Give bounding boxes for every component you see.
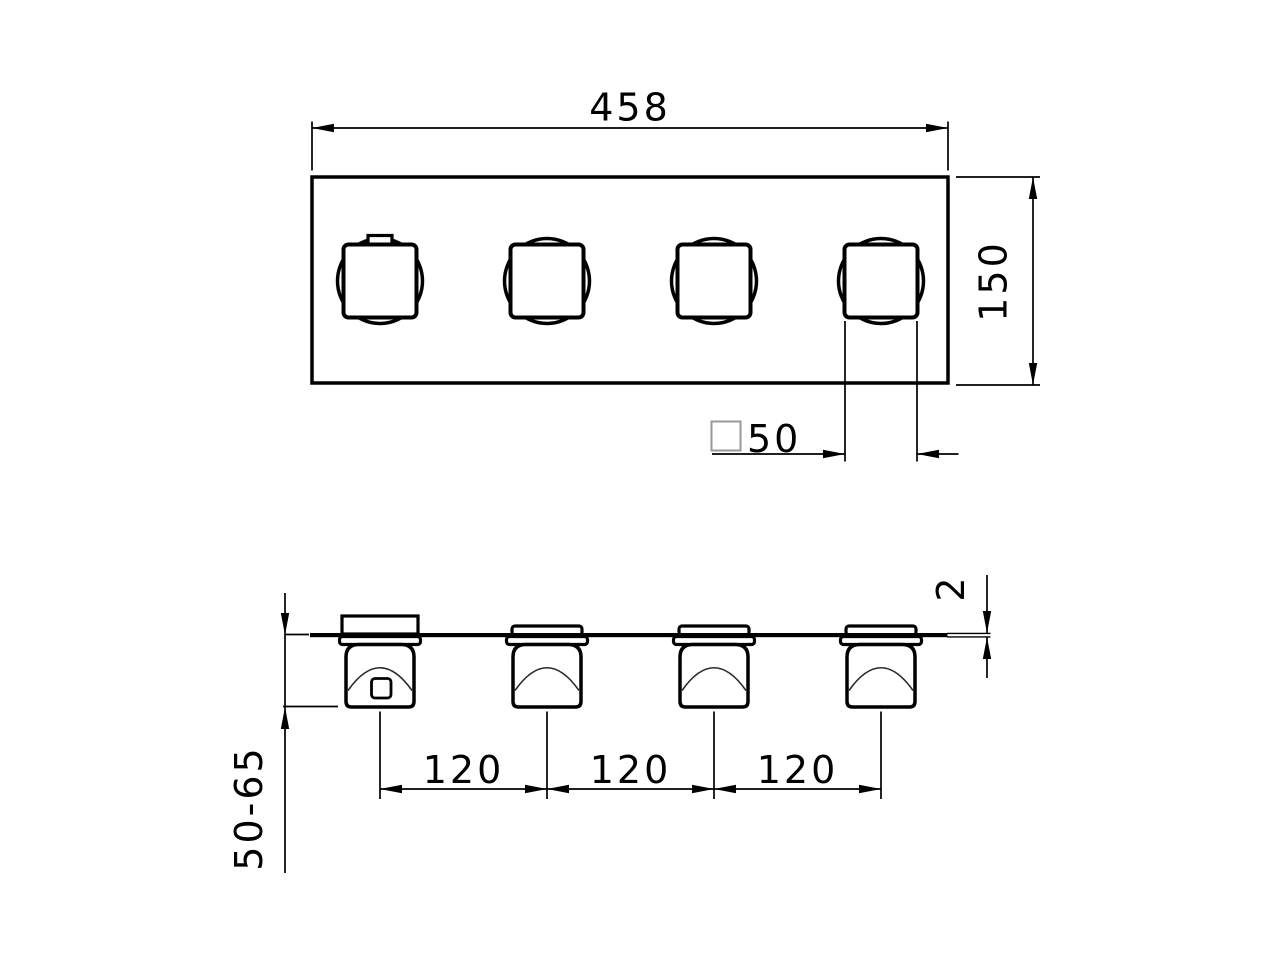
handle-square — [344, 245, 417, 318]
handle-cap — [342, 616, 418, 634]
arrowhead-up-icon — [281, 707, 289, 729]
handle-bottom-3 — [674, 626, 755, 707]
dim-handle-spacing: 120 120 120 — [380, 712, 881, 800]
handle-body — [513, 645, 581, 708]
handle-front-1 — [338, 236, 423, 324]
spacing-label-2: 120 — [590, 748, 672, 792]
handle-bottom-2 — [507, 626, 588, 707]
handle-bottom-4 — [841, 626, 922, 707]
overall-width-label: 458 — [589, 86, 671, 130]
arrowhead-right-icon — [823, 450, 845, 458]
handle-front-3 — [672, 239, 757, 324]
handle-bottom-1 — [340, 616, 421, 707]
drawing-svg: 458 150 50 — [0, 0, 1280, 960]
square-symbol-icon — [712, 422, 741, 451]
handle-body — [847, 645, 915, 708]
handle-square — [511, 245, 584, 318]
arrowhead-left-icon — [917, 450, 939, 458]
front-view — [312, 177, 948, 383]
dim-overall-height: 150 — [956, 177, 1040, 385]
arrowhead-down-icon — [1029, 363, 1037, 385]
arrowhead-down-icon — [983, 611, 991, 633]
spacing-label-3: 120 — [757, 748, 839, 792]
handle-front-4 — [839, 239, 924, 324]
arrowhead-left-icon — [312, 124, 334, 132]
handle-square — [678, 245, 751, 318]
plate-thickness-label: 2 — [929, 574, 973, 601]
overall-height-label: 150 — [972, 240, 1016, 322]
arrowhead-left-icon — [547, 785, 569, 793]
bottom-view — [310, 616, 991, 707]
dim-overall-width: 458 — [312, 86, 948, 171]
arrowhead-up-icon — [983, 637, 991, 659]
handle-front-2 — [505, 239, 590, 324]
arrowhead-right-icon — [859, 785, 881, 793]
spacing-label-1: 120 — [423, 748, 505, 792]
handle-square — [845, 245, 918, 318]
arrowhead-up-icon — [1029, 177, 1037, 199]
plate-edge — [310, 633, 948, 637]
arrowhead-right-icon — [525, 785, 547, 793]
dim-plate-thickness: 2 — [929, 574, 991, 678]
depth-range-label: 50-65 — [227, 745, 271, 870]
arrowhead-right-icon — [692, 785, 714, 793]
arrowhead-left-icon — [380, 785, 402, 793]
technical-drawing-canvas: 458 150 50 — [0, 0, 1280, 960]
arrowhead-right-icon — [926, 124, 948, 132]
safety-button — [372, 679, 392, 699]
handle-size-label: 50 — [747, 417, 801, 461]
handle-body — [680, 645, 748, 708]
arrowhead-left-icon — [714, 785, 736, 793]
arrowhead-down-icon — [281, 613, 289, 635]
